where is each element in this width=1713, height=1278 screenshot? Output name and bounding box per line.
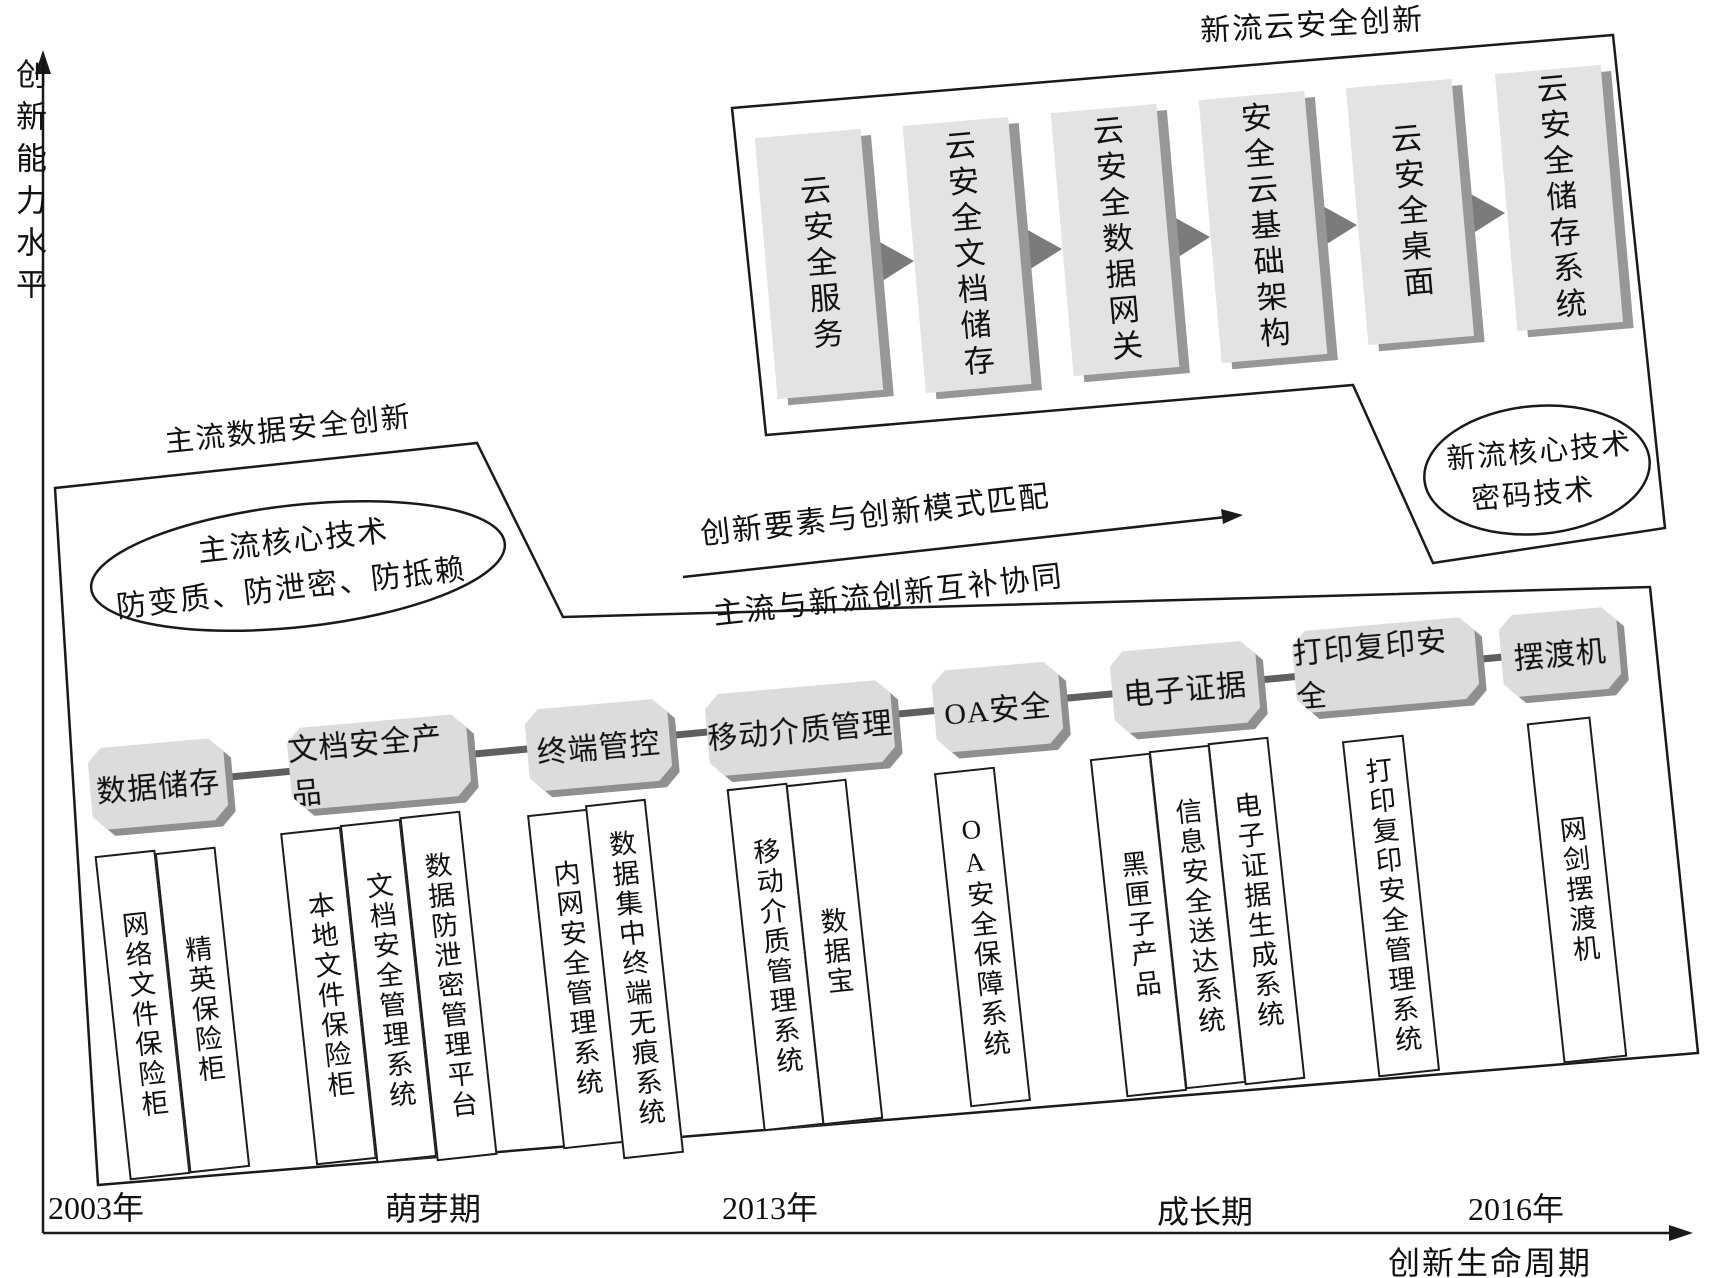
category-box-e-evidence: 电子证据 xyxy=(1109,640,1262,734)
category-box-data-storage: 数据储存 xyxy=(87,737,230,831)
category-box-mobile-media: 移动介质管理 xyxy=(704,679,896,777)
y-axis-label: 创新能力水平 xyxy=(6,58,51,310)
category-box-ferry-machine: 摆渡机 xyxy=(1498,606,1623,698)
category-box-terminal-control: 终端管控 xyxy=(524,698,674,792)
x-tick-2016: 2016年 xyxy=(1468,1184,1564,1230)
x-tick-germination: 萌芽期 xyxy=(385,1184,481,1230)
cloud-box-cloud-storage-system: 云安全储存系统 xyxy=(1495,65,1623,331)
cloud-box-cloud-desktop: 云安全桌面 xyxy=(1346,79,1474,345)
match-arrow-head xyxy=(1221,509,1243,524)
category-box-doc-security: 文档安全产品 xyxy=(286,713,472,810)
x-tick-growth: 成长期 xyxy=(1157,1187,1253,1233)
category-box-print-copy-security: 打印复印安全 xyxy=(1291,616,1480,714)
x-tick-2003: 2003年 xyxy=(48,1183,144,1229)
x-tick-2013: 2013年 xyxy=(722,1183,818,1229)
category-box-oa-security: OA安全 xyxy=(931,661,1065,754)
x-axis-label: 创新生命周期 xyxy=(1388,1238,1592,1278)
innovation-lifecycle-diagram: 创新能力水平 创新生命周期 2003年 萌芽期 2013年 成长期 2016年 … xyxy=(0,0,1713,1278)
cloud-box-cloud-security-service: 云安全服务 xyxy=(755,129,883,399)
x-axis-arrowhead xyxy=(1669,1225,1693,1241)
